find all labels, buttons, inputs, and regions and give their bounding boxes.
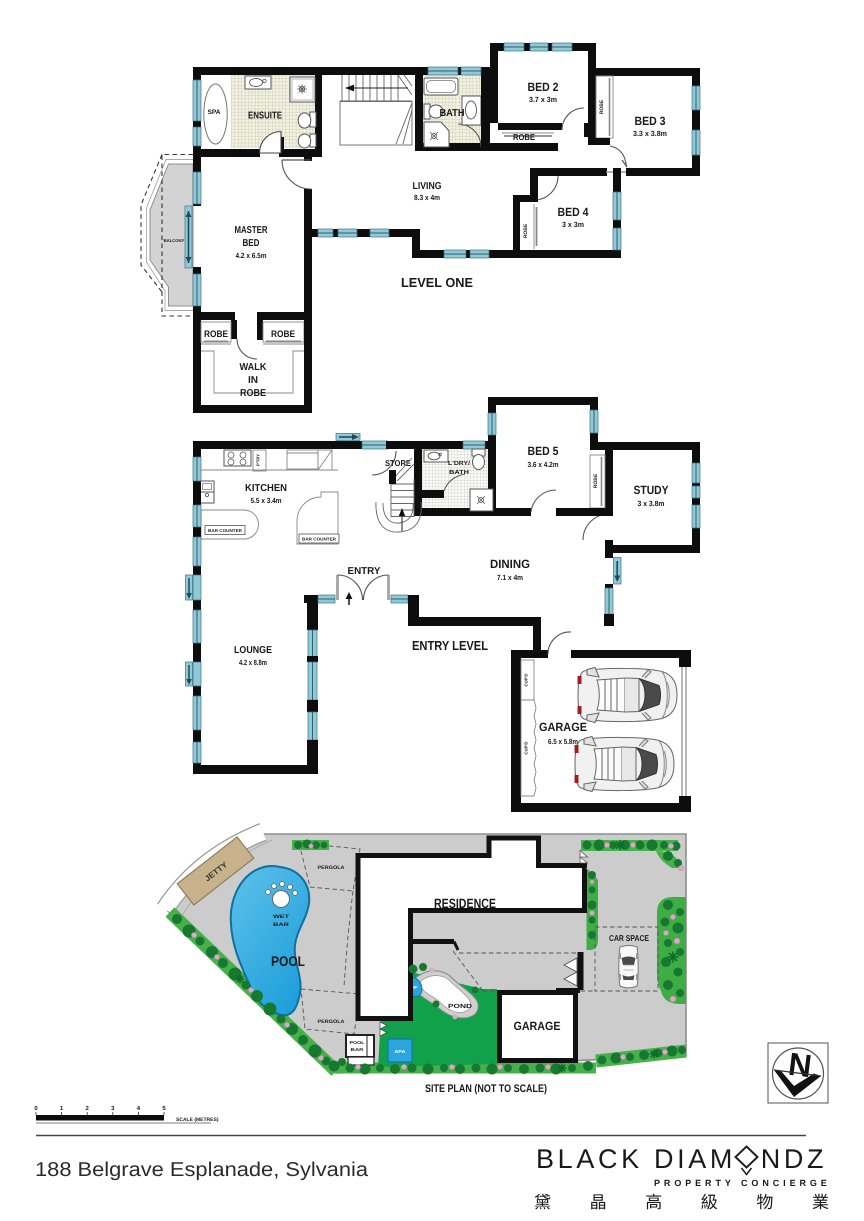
svg-text:LOUNGE: LOUNGE	[234, 645, 272, 656]
svg-text:ROBE: ROBE	[271, 329, 295, 340]
svg-text:KITCHEN: KITCHEN	[245, 483, 287, 494]
svg-text:CAR SPACE: CAR SPACE	[609, 933, 649, 943]
svg-text:6.5 x 5.8m: 6.5 x 5.8m	[548, 737, 578, 746]
svg-text:188 Belgrave Esplanade, Sylvan: 188 Belgrave Esplanade, Sylvania	[35, 1159, 369, 1181]
svg-text:ENTRY: ENTRY	[348, 566, 381, 577]
svg-text:ROBE: ROBE	[513, 132, 535, 142]
svg-text:BALCONY: BALCONY	[164, 238, 185, 243]
svg-text:SPA: SPA	[208, 109, 221, 116]
svg-text:MASTER: MASTER	[235, 225, 269, 236]
svg-text:SITE PLAN (NOT TO SCALE): SITE PLAN (NOT TO SCALE)	[425, 1083, 547, 1095]
svg-text:POOL: POOL	[350, 1040, 366, 1045]
svg-text:P'TRY: P'TRY	[256, 454, 261, 466]
svg-text:WET: WET	[273, 914, 289, 920]
svg-text:BED 2: BED 2	[528, 80, 559, 94]
svg-text:ROBE: ROBE	[240, 388, 266, 399]
svg-text:GARAGE: GARAGE	[539, 720, 587, 734]
svg-text:DINING: DINING	[490, 557, 530, 571]
svg-text:5.5 x 3.4m: 5.5 x 3.4m	[251, 496, 282, 505]
svg-text:RESIDENCE: RESIDENCE	[434, 896, 496, 911]
svg-text:ROBE: ROBE	[523, 223, 529, 238]
svg-text:LEVEL ONE: LEVEL ONE	[401, 275, 473, 290]
svg-text:CUP'D: CUP'D	[524, 674, 529, 687]
svg-text:3.6 x 4.2m: 3.6 x 4.2m	[528, 460, 559, 469]
svg-text:SPA: SPA	[395, 1049, 406, 1054]
svg-text:BED 4: BED 4	[558, 205, 589, 219]
svg-text:BED: BED	[243, 238, 260, 249]
svg-text:POND: POND	[448, 1003, 473, 1010]
svg-text:GARAGE: GARAGE	[514, 1019, 561, 1033]
svg-text:PROPERTY CONCIERGE: PROPERTY CONCIERGE	[654, 1178, 830, 1188]
svg-text:L'DRY/: L'DRY/	[448, 460, 470, 467]
svg-text:BAR: BAR	[351, 1047, 364, 1052]
svg-text:ROBE: ROBE	[593, 473, 599, 488]
svg-text:PERGOLA: PERGOLA	[318, 1019, 345, 1025]
svg-text:8.3 x 4m: 8.3 x 4m	[414, 193, 440, 202]
svg-text:4.2 x 8.8m: 4.2 x 8.8m	[239, 658, 267, 667]
svg-text:ROBE: ROBE	[599, 99, 605, 114]
svg-text:SCALE (METRES): SCALE (METRES)	[176, 1117, 219, 1123]
svg-text:3.7 x 3m: 3.7 x 3m	[529, 95, 557, 104]
svg-text:POOL: POOL	[271, 953, 305, 969]
svg-text:BAR COUNTER: BAR COUNTER	[302, 537, 336, 542]
svg-text:ROBE: ROBE	[204, 329, 228, 340]
svg-text:4.2 x 6.5m: 4.2 x 6.5m	[236, 251, 267, 260]
svg-text:BATH: BATH	[440, 108, 465, 119]
svg-text:IN: IN	[248, 375, 258, 386]
svg-text:BATH: BATH	[449, 469, 469, 476]
svg-text:3 x 3.8m: 3 x 3.8m	[638, 499, 665, 508]
svg-text:BED 5: BED 5	[528, 444, 559, 458]
svg-text:ENTRY LEVEL: ENTRY LEVEL	[412, 638, 488, 653]
svg-text:PERGOLA: PERGOLA	[318, 865, 345, 871]
svg-text:BAR COUNTER: BAR COUNTER	[208, 528, 242, 533]
svg-text:BLACK DIAMONDZ: BLACK DIAMONDZ	[536, 1144, 830, 1174]
svg-text:3 x 3m: 3 x 3m	[562, 220, 584, 229]
svg-text:STUDY: STUDY	[634, 483, 669, 497]
svg-text:ENSUITE: ENSUITE	[248, 111, 282, 122]
svg-text:WALK: WALK	[240, 362, 268, 373]
svg-text:CUP'D: CUP'D	[524, 742, 529, 755]
svg-text:BED 3: BED 3	[635, 114, 666, 128]
svg-text:LIVING: LIVING	[413, 181, 442, 192]
svg-text:BAR: BAR	[273, 922, 290, 928]
svg-text:7.1 x 4m: 7.1 x 4m	[497, 573, 523, 582]
svg-text:3.3 x 3.8m: 3.3 x 3.8m	[633, 129, 667, 138]
